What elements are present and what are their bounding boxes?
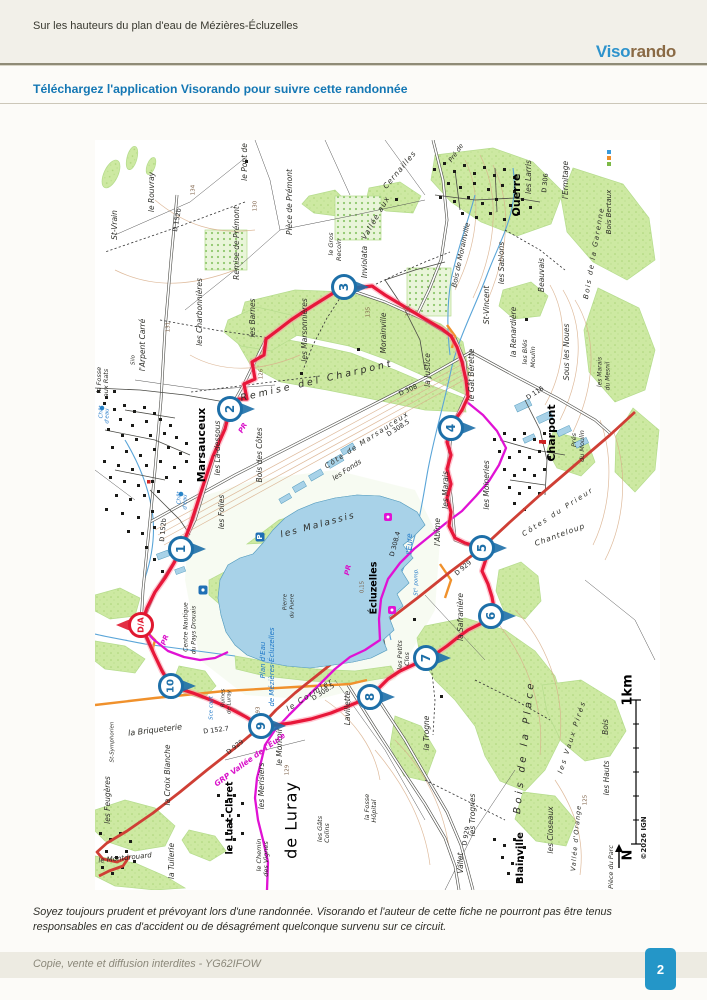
map-label: Pierre: [283, 593, 289, 610]
map-label: St° pomp.: [414, 568, 420, 596]
svg-text:8: 8: [363, 693, 377, 701]
svg-text:5: 5: [475, 544, 489, 552]
map-label: Silo: [131, 354, 137, 365]
svg-text:3: 3: [337, 283, 351, 291]
map-label: Écluzelles: [368, 561, 380, 614]
map-label: 131: [166, 322, 172, 333]
map-label: de Luray: [227, 689, 233, 714]
map-label: de Mézières-Écluzelles: [267, 627, 276, 706]
map-label: Inviolata: [360, 245, 369, 278]
svg-text:2: 2: [223, 405, 237, 413]
parking-icon: P: [256, 533, 265, 542]
map-label: 130: [253, 200, 259, 211]
map-label: 0,15: [360, 580, 366, 593]
map-label: 135: [366, 306, 372, 317]
map-label: du Mesnil: [605, 361, 612, 390]
map-label: 133: [406, 305, 412, 316]
map-label: les Charbonnières: [195, 278, 204, 346]
map-label: Bois: [601, 719, 610, 735]
link-divider: [0, 103, 707, 104]
map-label: Sous les Noues: [562, 323, 571, 380]
logo-viso: Viso: [596, 42, 630, 61]
poi-icon: [388, 606, 396, 614]
visorando-pdf-page: { "page": { "header_title": "Sur les hau…: [0, 0, 707, 1000]
map-label: les Blés: [521, 339, 529, 365]
page-number-badge: 2: [645, 948, 676, 990]
map-label: l'Arpent Carré: [138, 318, 147, 371]
map-label: les Folies: [217, 495, 226, 530]
logo-rando: rando: [630, 42, 676, 61]
visorando-logo: Visorando: [596, 42, 676, 62]
map-label: les Sablons: [497, 242, 506, 285]
map-label: la Trogne: [422, 715, 431, 750]
map-label: Plan d'Eau: [259, 641, 267, 678]
topo-map: P MarsauceuxOuerreCharpontÉcluzellesBlai…: [95, 140, 660, 890]
map-label: le Gros: [327, 232, 335, 256]
map-label: St-Vrain: [110, 210, 119, 240]
download-app-link[interactable]: Téléchargez l'application Visorando pour…: [33, 82, 408, 96]
map-label: 125: [583, 794, 589, 805]
map-label: Blainville: [515, 832, 526, 884]
map-label: des Vignes: [262, 841, 270, 877]
map-label: 93: [256, 706, 262, 713]
map-label: la Safranière: [456, 593, 465, 641]
map-label: de Luray: [282, 781, 301, 859]
svg-text:6: 6: [484, 612, 498, 620]
map-label: Ouerre: [510, 174, 523, 217]
map-label: Remise de Prémont: [232, 205, 241, 280]
map-label: les Merisiers: [257, 762, 266, 809]
map-label: les Hauts: [602, 760, 611, 795]
map-label: Vallet: [456, 851, 465, 873]
map-label: St-Symphorien: [110, 721, 116, 762]
map-label: Charpont: [545, 404, 558, 461]
map-label: l'Ermitage: [561, 160, 570, 199]
map-label: St-Vincent: [482, 285, 491, 325]
header-divider: [0, 63, 707, 66]
map-label: la Tuilerie: [167, 843, 176, 880]
map-label: Beauvais: [537, 258, 546, 292]
map-label: l'Abîme: [433, 518, 442, 546]
svg-text:9: 9: [254, 722, 268, 730]
map-label: Pièce du Parc: [607, 845, 615, 889]
map-label: Moulin: [529, 346, 537, 367]
map-label: Chât: [176, 491, 183, 505]
map-label: Colins: [323, 823, 331, 843]
map-label: N: [621, 850, 636, 861]
svg-text:10: 10: [166, 679, 177, 693]
map-label: du Moulin: [578, 430, 586, 462]
map-label: le Gât Bérette: [467, 348, 476, 401]
map-label: les Barnes: [248, 298, 257, 337]
document-title: Sur les hauteurs du plan d'eau de Mézièr…: [33, 20, 298, 32]
map-label: Prés: [570, 432, 578, 447]
poi-icon: [384, 513, 392, 521]
map-label: du Pays Drouais: [191, 606, 198, 654]
svg-text:4: 4: [444, 424, 458, 432]
map-label: ©2026 IGN: [640, 816, 648, 859]
map-label: les Marsonnières: [300, 298, 309, 362]
map-label: la Renardière: [509, 306, 518, 357]
map-label: le Rouvray: [147, 171, 156, 212]
svg-text:P: P: [256, 534, 264, 539]
map-label: Marsauceux: [195, 408, 208, 483]
map-label: aux Rats: [102, 368, 110, 397]
svg-text:D/A: D/A: [137, 616, 146, 633]
safety-disclaimer: Soyez toujours prudent et prévoyant lors…: [33, 905, 678, 935]
map-label: les Closeaux: [546, 806, 555, 854]
map-label: Centre Nautique: [183, 602, 190, 652]
map-label: Clos: [403, 652, 411, 666]
map-label: le Pont de: [240, 143, 249, 181]
map-label: les Moineries: [482, 460, 491, 509]
map-label: Pièce de Prémont: [285, 168, 294, 235]
map-label: Lavillette: [343, 690, 352, 725]
watermark: [607, 150, 611, 166]
map-label: du Puere: [290, 593, 296, 618]
map-label: d'eau: [183, 494, 189, 510]
svg-text:7: 7: [419, 654, 433, 662]
map-label: le Luat-Claret: [225, 781, 236, 854]
map-label: la Justice: [423, 353, 432, 387]
map-label: Sce capt: [209, 695, 215, 720]
map-label: Recoin: [335, 239, 343, 261]
copyright-note: Copie, vente et diffusion interdites - Y…: [33, 958, 261, 970]
map-label: la Croix Blanche: [163, 744, 172, 805]
map-label: les Marais: [441, 471, 450, 509]
map-label: l'Eure: [405, 533, 414, 555]
svg-text:1: 1: [174, 545, 188, 553]
map-label: 1km: [621, 674, 636, 705]
map-label: Chât: [98, 405, 105, 419]
map-label: Morainville: [379, 312, 388, 353]
map-label: Bois Bertaux: [605, 189, 613, 234]
map-label: les Là-dessous: [213, 420, 222, 475]
map-label: les Marais: [597, 357, 604, 387]
map-label: 129: [285, 764, 291, 775]
map-label: d'eau: [105, 408, 111, 424]
map-label: les Feugères: [103, 776, 112, 824]
map-label: Hôpital: [370, 799, 378, 822]
map-label: 134: [191, 184, 197, 195]
map-label: D 306: [540, 173, 550, 193]
map-label: les Larris: [524, 160, 533, 194]
info-icon: [199, 586, 208, 595]
map-label: Bois des Côtes: [255, 427, 264, 482]
map-label: 126: [259, 368, 265, 379]
